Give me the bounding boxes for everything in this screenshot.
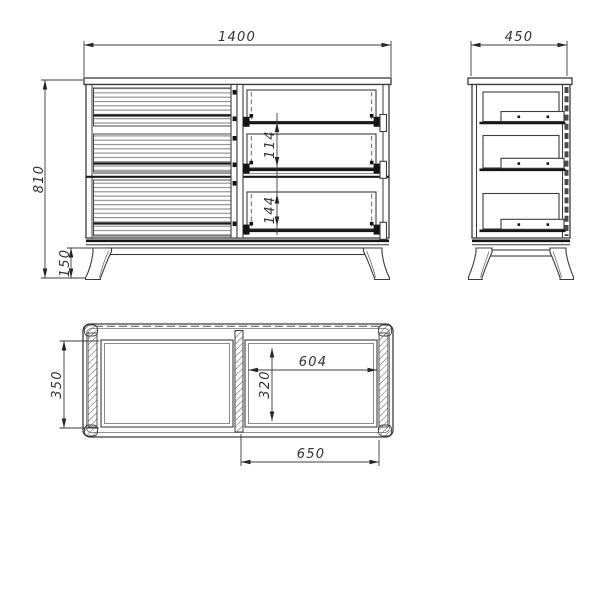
dim-front-width-label: 1400: [218, 30, 256, 45]
dim-front-gap-upper-label: 114: [263, 130, 278, 158]
technical-drawing: 1400 810 150 114 144: [0, 0, 600, 600]
front-slatted-door: [94, 85, 244, 239]
side-drawer-profiles: [480, 92, 566, 231]
dim-plan-drawer-depth-label: 320: [258, 370, 273, 398]
dim-plan-inner-depth-label: 350: [50, 370, 65, 398]
plan-left-panel: [88, 333, 97, 427]
front-top-panel: [84, 78, 391, 85]
plan-right-panel: [379, 333, 388, 427]
plan-centre-divider: [235, 331, 243, 433]
dim-front-height-label: 810: [32, 165, 47, 193]
dim-front-leg-height-label: 150: [58, 249, 73, 277]
dim-side-depth-label: 450: [505, 30, 533, 45]
dim-plan-drawer-width-label: 604: [299, 355, 327, 370]
dim-front-gap-lower-label: 144: [263, 196, 278, 224]
side-top-panel: [468, 78, 572, 85]
plan-left-compartment: [101, 340, 233, 427]
drawing-canvas: 1400 810 150 114 144: [0, 0, 600, 600]
dim-plan-door-width-label: 650: [297, 447, 325, 462]
